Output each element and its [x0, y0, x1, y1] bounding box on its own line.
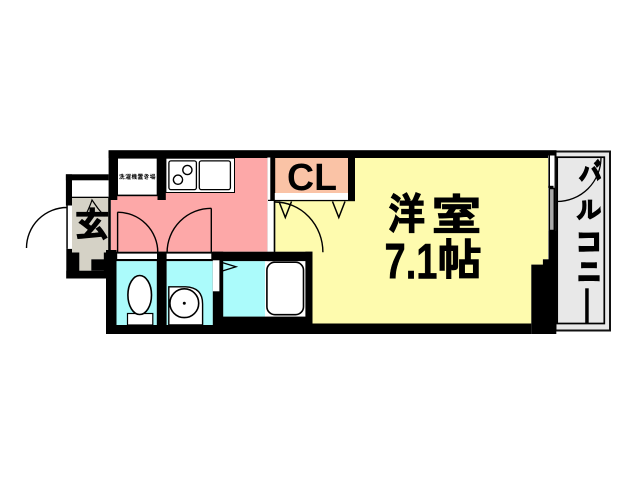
svg-text:CL: CL — [287, 157, 337, 199]
svg-text:7.1: 7.1 — [385, 234, 438, 290]
